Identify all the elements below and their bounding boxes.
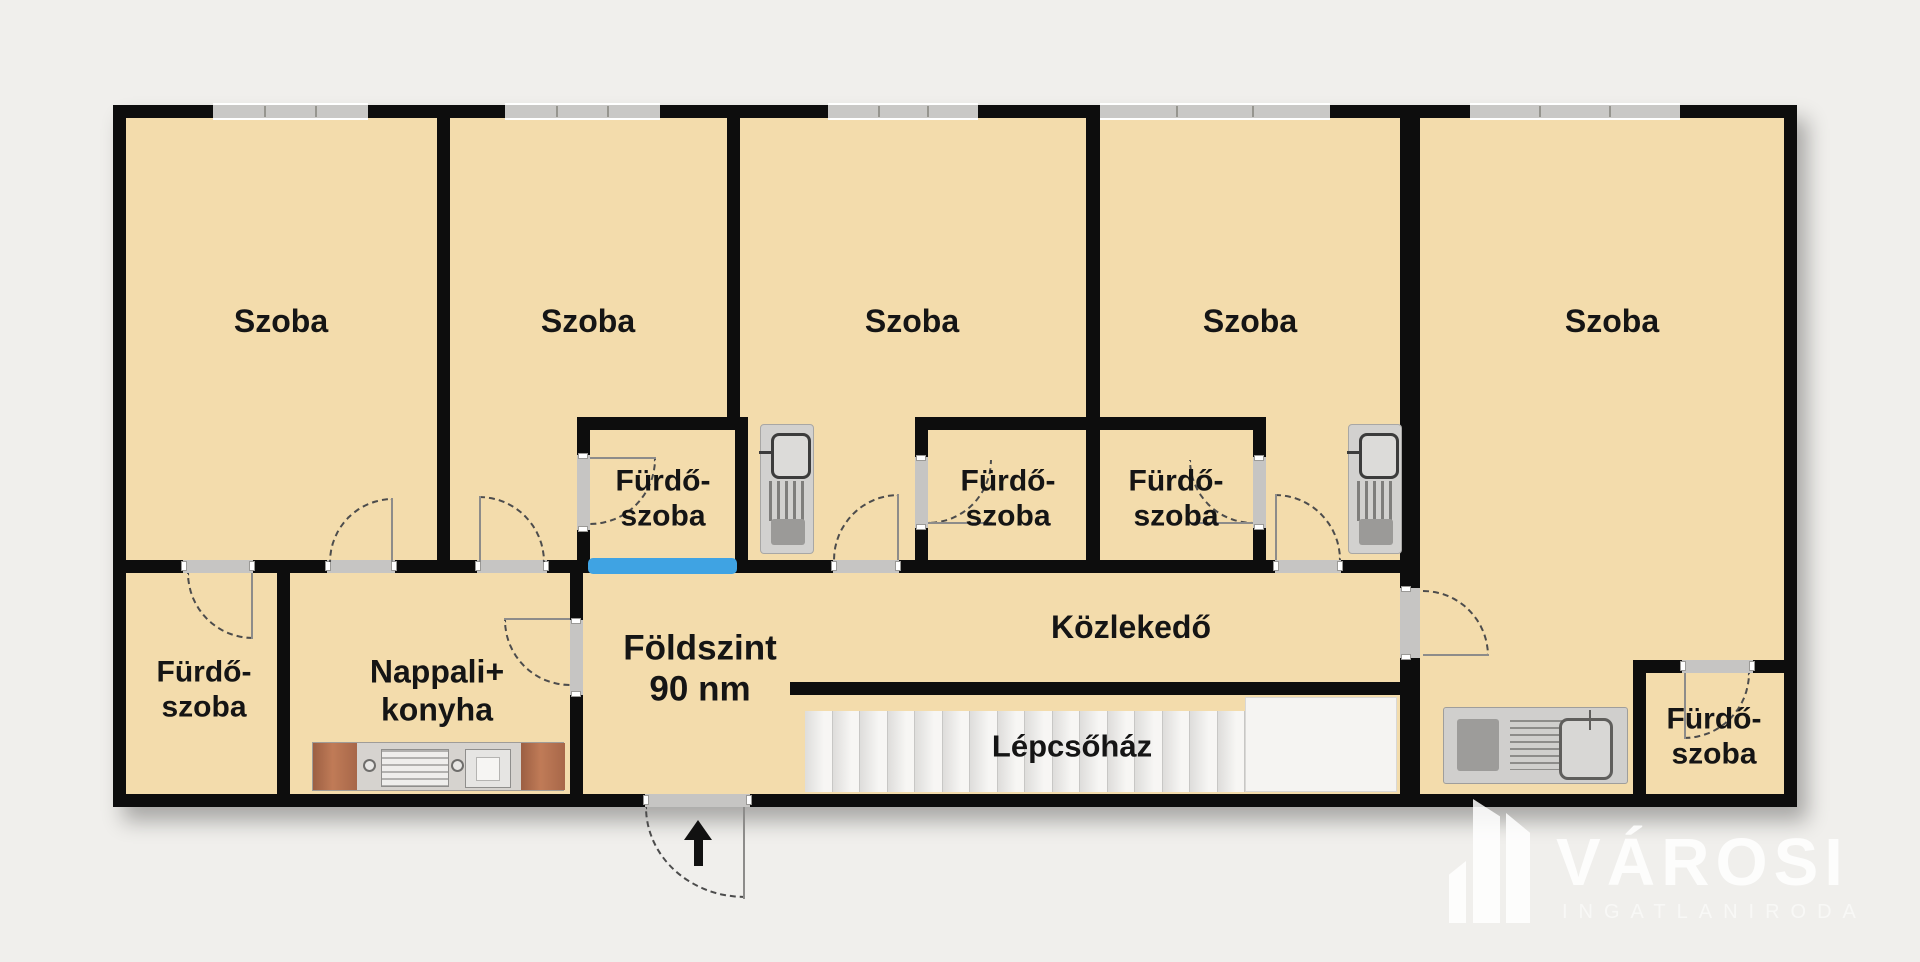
faucet-icon: [759, 451, 771, 454]
label-line: szoba: [620, 500, 705, 533]
wall: [735, 417, 748, 573]
sink-basin-icon: [1559, 718, 1613, 780]
room-label-nappali-konyha: Nappali+ konyha: [370, 653, 504, 729]
window: [213, 103, 368, 120]
wall: [727, 105, 740, 430]
wall: [126, 560, 1400, 573]
door-leaf: [504, 618, 570, 620]
faucet-icon: [1589, 710, 1591, 730]
door-opening: [183, 560, 253, 573]
door-leaf: [590, 457, 656, 459]
wall: [1086, 105, 1100, 573]
stove-dial-icon: [363, 759, 376, 772]
room-label-bathroom-bottom-left: Fürdő- szoba: [157, 655, 252, 726]
faucet-icon: [1347, 451, 1359, 454]
door-opening: [577, 455, 590, 530]
room-label-szoba-2: Szoba: [541, 303, 635, 341]
stove-dial-icon: [451, 759, 464, 772]
floor-title: Földszint 90 nm: [623, 628, 777, 711]
wall: [437, 105, 450, 573]
floor-name: Földszint: [623, 629, 777, 668]
radiator-lines-icon: [769, 481, 807, 521]
label-line: konyha: [381, 691, 493, 727]
wall: [790, 682, 1400, 695]
shower-radiator-icon: [760, 424, 814, 554]
stair-step: [915, 711, 943, 792]
door-opening: [570, 620, 583, 695]
entrance-arrow-icon: [684, 820, 712, 840]
logo-building-icon: [1473, 799, 1500, 923]
radiator-foot-icon: [1359, 519, 1393, 545]
label-line: szoba: [161, 691, 246, 724]
logo-building-icon: [1449, 861, 1466, 923]
door-leaf: [1275, 494, 1277, 560]
label-line: Fürdő-: [157, 656, 252, 689]
stove-panel-icon: [381, 749, 449, 787]
logo-subtitle: INGATLANIRODA: [1562, 901, 1867, 924]
entrance-arrow-icon: [694, 838, 703, 866]
label-line: Fürdő-: [1129, 465, 1224, 498]
door-leaf: [251, 573, 253, 639]
window: [1100, 103, 1330, 120]
logo-brand: VÁROSI: [1556, 824, 1849, 901]
entrance-door-opening: [645, 794, 750, 807]
kitchen-counter-icon: [312, 742, 564, 791]
radiator-lines-icon: [1357, 481, 1395, 521]
counter-hob-icon: [1457, 719, 1499, 771]
wall: [915, 417, 1266, 430]
cabinet-icon: [521, 743, 565, 790]
door-opening: [1275, 560, 1341, 573]
stair-step: [888, 711, 916, 792]
wall: [1400, 105, 1420, 807]
door-leaf: [391, 498, 393, 562]
kitchenette-sink-counter-icon: [1443, 707, 1628, 784]
stair-step: [860, 711, 888, 792]
window: [828, 103, 978, 120]
sink-icon: [771, 433, 811, 479]
window: [1470, 103, 1680, 120]
sink-icon: [1359, 433, 1399, 479]
label-line: Fürdő-: [961, 465, 1056, 498]
stair-step: [805, 711, 833, 792]
radiator-foot-icon: [771, 519, 805, 545]
stair-step: [943, 711, 971, 792]
door-opening: [915, 457, 928, 528]
wall: [1784, 105, 1797, 807]
room-label-lepcsohaz: Lépcsőház: [992, 729, 1152, 766]
room-label-bathroom-c: Fürdő- szoba: [1129, 464, 1224, 535]
room-label-bathroom-a: Fürdő- szoba: [616, 464, 711, 535]
interior-window-blue: [588, 558, 737, 574]
door-leaf: [479, 496, 481, 562]
oven-icon: [465, 749, 511, 788]
room-label-kozlekedo: Közlekedő: [1051, 609, 1211, 647]
stair-step: [1190, 711, 1218, 792]
label-line: szoba: [1133, 500, 1218, 533]
door-opening: [1400, 588, 1420, 658]
door-leaf: [743, 807, 745, 899]
label-line: Fürdő-: [616, 465, 711, 498]
door-opening: [833, 560, 899, 573]
label-line: szoba: [1671, 738, 1756, 771]
wall: [113, 794, 1797, 807]
wall: [577, 417, 748, 430]
stair-step: [1218, 711, 1246, 792]
stair-step: [833, 711, 861, 792]
stair-step: [1163, 711, 1191, 792]
dish-rack-icon: [1510, 720, 1562, 770]
label-line: Nappali+: [370, 653, 504, 689]
shower-radiator-icon: [1348, 424, 1402, 554]
door-opening: [1682, 660, 1753, 673]
label-line: Fürdő-: [1667, 703, 1762, 736]
door-leaf: [1423, 654, 1489, 656]
door-opening: [1253, 457, 1266, 528]
room-label-szoba-3: Szoba: [865, 303, 959, 341]
room-label-bathroom-bottom-right: Fürdő- szoba: [1667, 702, 1762, 773]
room-label-szoba-1: Szoba: [234, 303, 328, 341]
room-label-szoba-5: Szoba: [1565, 303, 1659, 341]
wall: [1633, 660, 1646, 807]
stair-landing: [1245, 697, 1397, 792]
cabinet-icon: [313, 743, 357, 790]
room-label-szoba-4: Szoba: [1203, 303, 1297, 341]
wall: [277, 560, 290, 807]
label-line: szoba: [965, 500, 1050, 533]
wall: [113, 105, 126, 807]
logo-building-icon: [1506, 813, 1530, 923]
room-label-bathroom-b: Fürdő- szoba: [961, 464, 1056, 535]
door-leaf: [897, 494, 899, 560]
window: [505, 103, 660, 120]
floor-area: 90 nm: [649, 670, 750, 709]
